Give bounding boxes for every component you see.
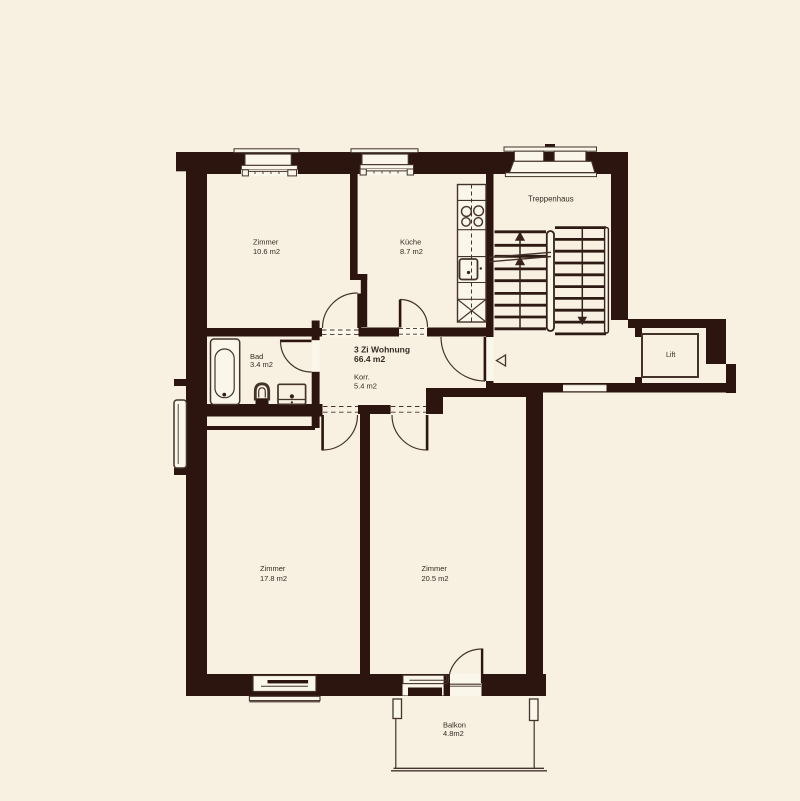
svg-text:20.5 m2: 20.5 m2: [422, 574, 449, 583]
svg-text:3 Zi Wohnung: 3 Zi Wohnung: [354, 345, 410, 355]
svg-text:3.4 m2: 3.4 m2: [250, 360, 273, 369]
svg-text:8.7 m2: 8.7 m2: [400, 247, 423, 256]
svg-text:Zimmer: Zimmer: [260, 564, 286, 573]
svg-text:Treppenhaus: Treppenhaus: [528, 195, 574, 204]
svg-text:Korr.: Korr.: [354, 373, 370, 382]
svg-text:4.8m2: 4.8m2: [443, 729, 464, 738]
svg-text:10.6 m2: 10.6 m2: [253, 247, 280, 256]
svg-text:Küche: Küche: [400, 238, 421, 247]
svg-text:Zimmer: Zimmer: [422, 564, 448, 573]
svg-text:66.4 m2: 66.4 m2: [354, 354, 385, 364]
svg-text:17.8 m2: 17.8 m2: [260, 574, 287, 583]
svg-text:Lift: Lift: [666, 352, 675, 359]
svg-text:5.4 m2: 5.4 m2: [354, 382, 377, 391]
svg-text:Zimmer: Zimmer: [253, 238, 279, 247]
